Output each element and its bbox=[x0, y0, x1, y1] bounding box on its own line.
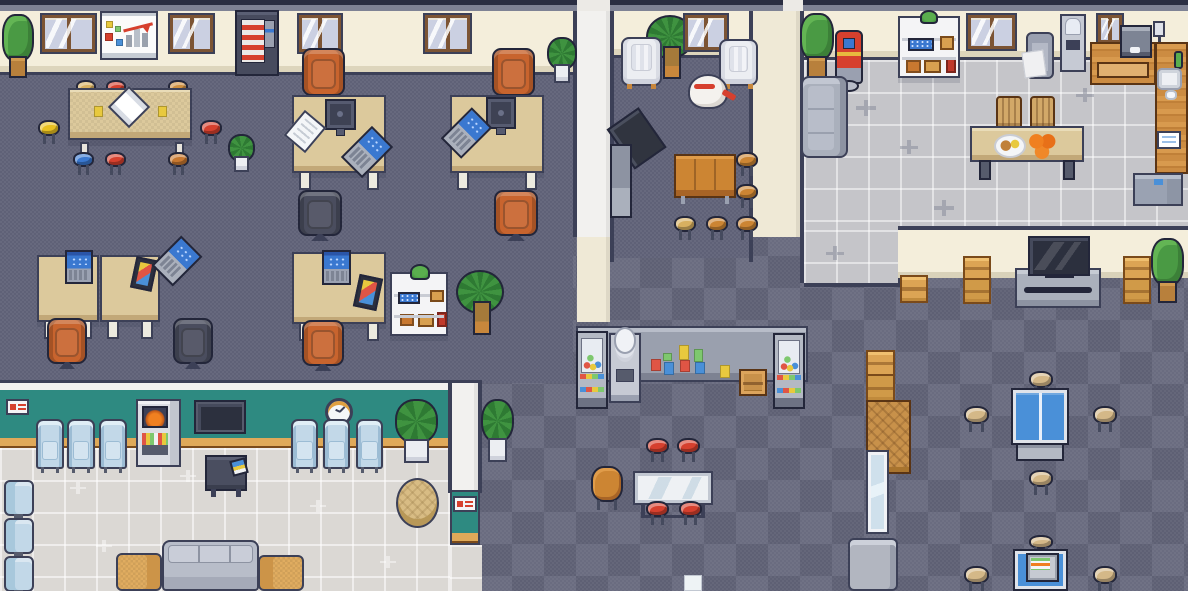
stool[interactable] bbox=[646, 438, 669, 454]
shelf-plant-part bbox=[410, 264, 430, 280]
waiting-chair[interactable] bbox=[36, 419, 64, 469]
cardboard-boxes[interactable] bbox=[866, 350, 895, 402]
box-part bbox=[430, 290, 444, 302]
capsule-machine[interactable] bbox=[576, 331, 608, 409]
capsule-machine[interactable] bbox=[773, 333, 805, 409]
gift-part bbox=[400, 314, 414, 326]
waiting-chair[interactable] bbox=[67, 419, 95, 469]
note-part bbox=[680, 360, 690, 372]
floor-mark bbox=[856, 100, 876, 116]
stool[interactable] bbox=[168, 152, 189, 167]
gray-cabinet[interactable] bbox=[848, 538, 898, 591]
note-part bbox=[664, 362, 674, 375]
hallway-opening-top-2 bbox=[783, 0, 803, 11]
water-cooler[interactable] bbox=[609, 333, 641, 403]
reception-east-wall bbox=[452, 383, 478, 490]
water-cooler[interactable] bbox=[1060, 14, 1086, 72]
dining-chair[interactable] bbox=[996, 96, 1022, 129]
note-part bbox=[679, 345, 689, 360]
waiting-chair[interactable] bbox=[99, 419, 127, 469]
bar-part bbox=[126, 35, 132, 47]
armchair[interactable] bbox=[719, 39, 758, 86]
chair-with-cloth[interactable] bbox=[1026, 32, 1054, 79]
floor-paper bbox=[684, 575, 702, 591]
stool[interactable] bbox=[736, 216, 758, 232]
stool[interactable] bbox=[736, 184, 758, 200]
standing-mirror[interactable] bbox=[866, 450, 889, 534]
office-chair[interactable] bbox=[173, 318, 213, 364]
diner-table[interactable] bbox=[633, 471, 713, 505]
tan-armchair[interactable] bbox=[116, 553, 162, 591]
blue-part bbox=[908, 38, 934, 51]
stool[interactable] bbox=[674, 216, 696, 232]
note-part bbox=[115, 26, 121, 32]
potted-tree[interactable] bbox=[800, 13, 834, 78]
dishwasher[interactable] bbox=[1133, 173, 1183, 206]
coffee-table[interactable] bbox=[205, 455, 247, 491]
window[interactable] bbox=[168, 13, 215, 54]
potted-plant[interactable] bbox=[228, 134, 255, 172]
waiting-chair[interactable] bbox=[4, 518, 34, 554]
bar-part bbox=[142, 33, 148, 47]
gift-part bbox=[437, 312, 447, 327]
office-chair[interactable] bbox=[298, 190, 342, 236]
blue-part bbox=[398, 292, 420, 304]
note-part bbox=[158, 106, 167, 117]
stool[interactable] bbox=[1093, 406, 1117, 424]
stool[interactable] bbox=[1029, 535, 1053, 549]
kitchen-floor-ext bbox=[804, 230, 898, 285]
stool[interactable] bbox=[736, 152, 758, 168]
stool[interactable] bbox=[964, 406, 989, 424]
cardboard-box[interactable] bbox=[900, 275, 928, 303]
waiting-chair[interactable] bbox=[291, 419, 318, 469]
floor-mark bbox=[180, 470, 196, 482]
floor-mark bbox=[934, 200, 954, 216]
hallway-strip-west-lower bbox=[577, 237, 610, 322]
exit-sign[interactable] bbox=[453, 496, 477, 512]
potted-tree[interactable] bbox=[2, 14, 34, 78]
stool[interactable] bbox=[646, 501, 669, 517]
wall-tv[interactable] bbox=[196, 402, 244, 432]
office-chair[interactable] bbox=[302, 48, 345, 96]
gift-part bbox=[946, 58, 956, 73]
dining-chair[interactable] bbox=[1030, 96, 1055, 129]
note-part bbox=[720, 365, 730, 378]
bottle[interactable] bbox=[1174, 51, 1183, 69]
whiteboard-chart[interactable] bbox=[100, 11, 158, 60]
stool[interactable] bbox=[679, 501, 702, 517]
storage-shelf[interactable] bbox=[390, 272, 448, 336]
gift-part bbox=[906, 60, 921, 73]
stool[interactable] bbox=[200, 120, 222, 136]
oranges-part bbox=[1028, 133, 1056, 159]
floor-mark bbox=[380, 556, 396, 568]
stool[interactable] bbox=[1029, 371, 1053, 388]
kitchen-counter[interactable] bbox=[1155, 42, 1188, 174]
monitor[interactable] bbox=[325, 99, 356, 130]
stool[interactable] bbox=[677, 438, 700, 454]
food-vending-machine[interactable] bbox=[136, 399, 181, 467]
note-part bbox=[106, 21, 113, 28]
doc-part bbox=[108, 86, 150, 128]
ottoman[interactable] bbox=[396, 478, 439, 528]
stool[interactable] bbox=[964, 566, 989, 584]
note-part bbox=[94, 106, 103, 117]
mags-part bbox=[229, 457, 249, 477]
note-part bbox=[694, 349, 703, 362]
wall-outlet[interactable] bbox=[1153, 21, 1165, 37]
wooden-crate[interactable] bbox=[739, 369, 767, 396]
note-part bbox=[651, 359, 661, 371]
vending-machine[interactable] bbox=[235, 10, 279, 76]
armchair[interactable] bbox=[621, 37, 662, 86]
waiting-chair[interactable] bbox=[356, 419, 383, 469]
sink[interactable] bbox=[1157, 68, 1182, 90]
tv[interactable] bbox=[1028, 236, 1090, 276]
wooden-bench[interactable] bbox=[674, 154, 736, 198]
stool[interactable] bbox=[1029, 470, 1053, 487]
potted-plant[interactable] bbox=[395, 399, 438, 463]
laptop[interactable] bbox=[65, 250, 93, 284]
stool[interactable] bbox=[105, 152, 126, 167]
game-table[interactable] bbox=[1011, 388, 1069, 445]
kitchen-ext-south-border bbox=[804, 283, 902, 287]
box-part bbox=[940, 36, 954, 50]
dining-table[interactable] bbox=[970, 126, 1084, 162]
tan-armchair[interactable] bbox=[258, 555, 304, 591]
scene bbox=[0, 0, 1188, 591]
floor-mark bbox=[70, 482, 86, 494]
wooden-stool[interactable] bbox=[591, 466, 623, 502]
floor-mark bbox=[310, 500, 326, 512]
stool[interactable] bbox=[38, 120, 60, 136]
floor-mark bbox=[826, 246, 844, 260]
office-chair[interactable] bbox=[492, 48, 535, 96]
dog[interactable] bbox=[688, 74, 728, 109]
gray-sofa[interactable] bbox=[801, 76, 848, 158]
laptop[interactable] bbox=[322, 250, 351, 285]
note-part bbox=[116, 39, 123, 46]
notepad[interactable] bbox=[1157, 131, 1181, 149]
window[interactable] bbox=[40, 13, 97, 54]
note-part bbox=[695, 362, 705, 374]
potted-plant[interactable] bbox=[481, 399, 514, 462]
office-chair[interactable] bbox=[494, 190, 538, 236]
stool[interactable] bbox=[706, 216, 728, 232]
waiting-chair[interactable] bbox=[323, 419, 350, 469]
reception-exit-floor bbox=[450, 545, 482, 591]
office-chair[interactable] bbox=[47, 318, 87, 364]
box-part bbox=[418, 314, 434, 327]
box-part bbox=[924, 60, 941, 73]
hallway-strip-east bbox=[753, 11, 800, 237]
stool[interactable] bbox=[1093, 566, 1117, 584]
reception-north-band bbox=[0, 383, 452, 390]
cardboard-boxes[interactable] bbox=[963, 256, 991, 304]
standing-tv[interactable] bbox=[610, 112, 656, 218]
bar-part bbox=[134, 29, 140, 47]
waiting-chair[interactable] bbox=[4, 556, 34, 591]
potted-tree[interactable] bbox=[1151, 238, 1184, 303]
shelf-plant-part bbox=[920, 10, 938, 24]
waiting-chair[interactable] bbox=[4, 480, 34, 516]
monitor[interactable] bbox=[486, 97, 516, 129]
gray-sofa[interactable] bbox=[162, 540, 259, 591]
plate-part bbox=[994, 134, 1026, 158]
kitchen-shelf[interactable] bbox=[898, 16, 960, 78]
note-part bbox=[663, 353, 672, 361]
meeting-table[interactable] bbox=[68, 88, 192, 140]
stool[interactable] bbox=[73, 152, 94, 167]
floor-mark bbox=[900, 140, 918, 154]
floor-mark bbox=[1076, 88, 1094, 102]
palm-plant[interactable] bbox=[456, 270, 504, 335]
coffee-machine[interactable] bbox=[1120, 25, 1152, 58]
hallway-opening-top bbox=[577, 0, 610, 11]
wall-sign[interactable] bbox=[6, 399, 29, 415]
cardboard-boxes[interactable] bbox=[1123, 256, 1151, 304]
cup[interactable] bbox=[1165, 90, 1177, 100]
window[interactable] bbox=[966, 13, 1017, 51]
floor-mark bbox=[96, 540, 112, 552]
office-chair[interactable] bbox=[302, 320, 344, 366]
computer-table[interactable] bbox=[1013, 549, 1068, 591]
hallway-strip-west bbox=[577, 11, 610, 237]
note-part bbox=[105, 33, 113, 41]
window[interactable] bbox=[423, 13, 472, 54]
potted-plant[interactable] bbox=[547, 37, 577, 83]
